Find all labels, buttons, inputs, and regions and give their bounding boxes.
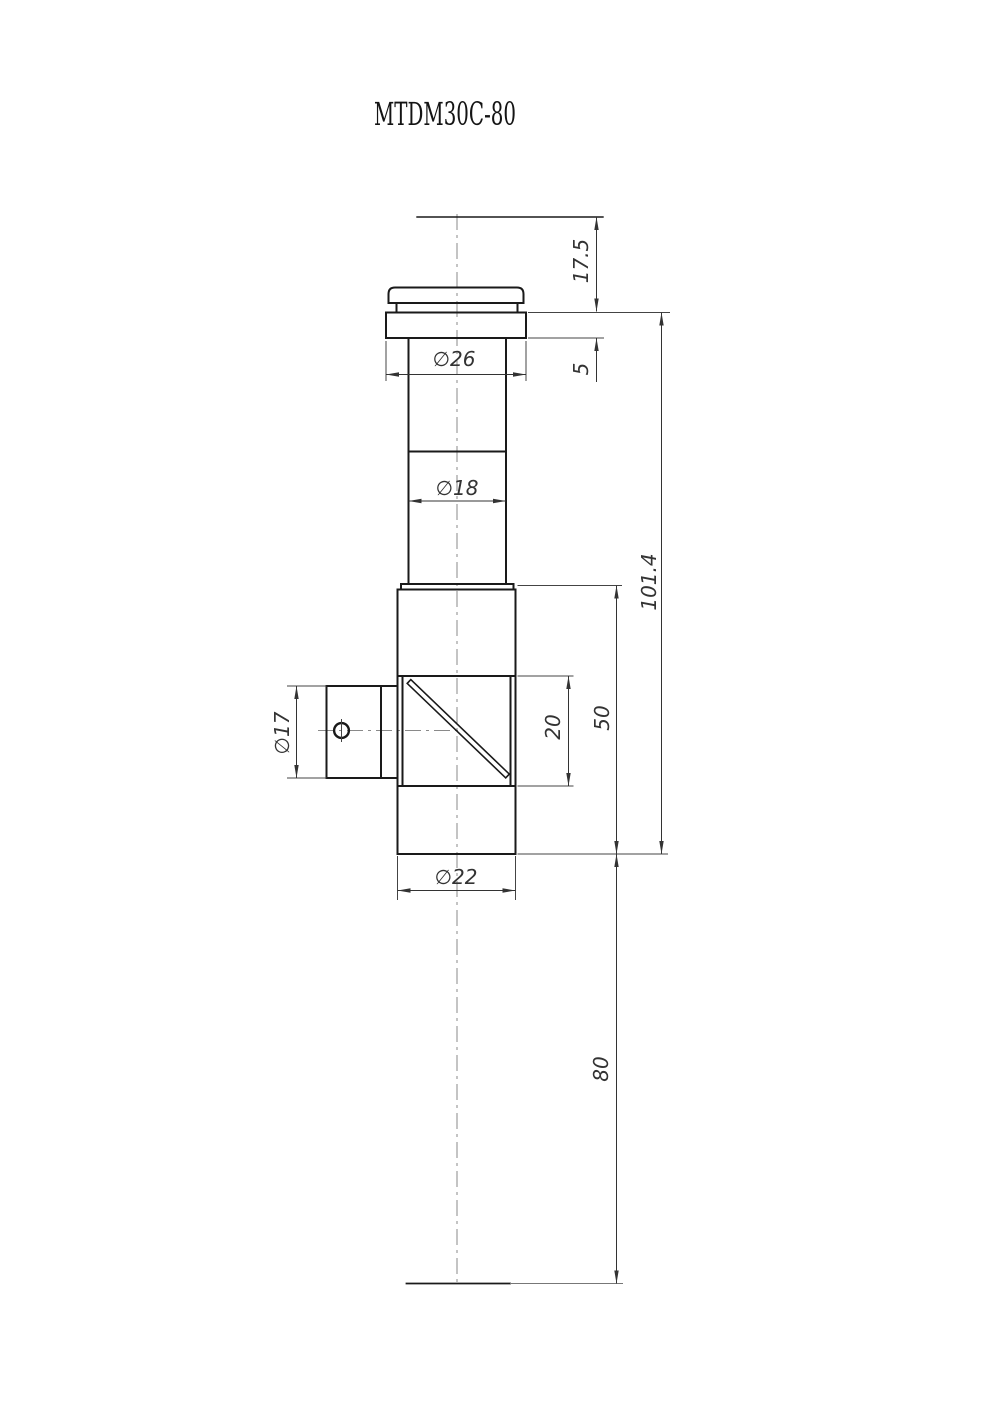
part-outline (327, 217, 624, 1284)
drawing-title: MTDM30C-80 (374, 95, 516, 133)
dimension-exit-distance: 80 (518, 854, 669, 1284)
dim-label-overall-length: 101.4 (637, 553, 661, 610)
dim-label-tube-diameter: ∅18 (436, 476, 479, 500)
dimension-aperture-length: 20 (518, 676, 574, 786)
dim-label-top-to-flange: 17.5 (569, 239, 593, 284)
dim-label-exit-distance: 80 (589, 1056, 613, 1081)
technical-drawing-canvas: MTDM30C-80 (0, 0, 992, 1403)
mounting-flange (386, 313, 526, 339)
drawing-page: MTDM30C-80 (0, 0, 992, 1403)
top-cap (389, 288, 524, 304)
dim-label-body-length: 50 (590, 705, 614, 730)
diagonal-mirror-plate (407, 680, 509, 778)
dim-label-aperture-length: 20 (541, 714, 565, 739)
dim-label-side-port-diameter: ∅17 (270, 711, 294, 754)
dimension-flange-thickness: 5 (528, 313, 670, 383)
side-port (327, 686, 398, 778)
dimension-overall-length: 101.4 (637, 313, 662, 855)
dim-label-body-diameter: ∅22 (435, 865, 478, 889)
dimension-tube-diameter: ∅18 (409, 476, 507, 501)
dimension-side-port-diameter: ∅17 (270, 686, 327, 778)
dim-label-flange-diameter: ∅26 (433, 347, 476, 371)
dimension-body-length: 50 (518, 586, 623, 855)
dim-label-flange-thickness: 5 (569, 363, 593, 376)
dimension-top-to-flange: 17.5 (569, 217, 597, 312)
